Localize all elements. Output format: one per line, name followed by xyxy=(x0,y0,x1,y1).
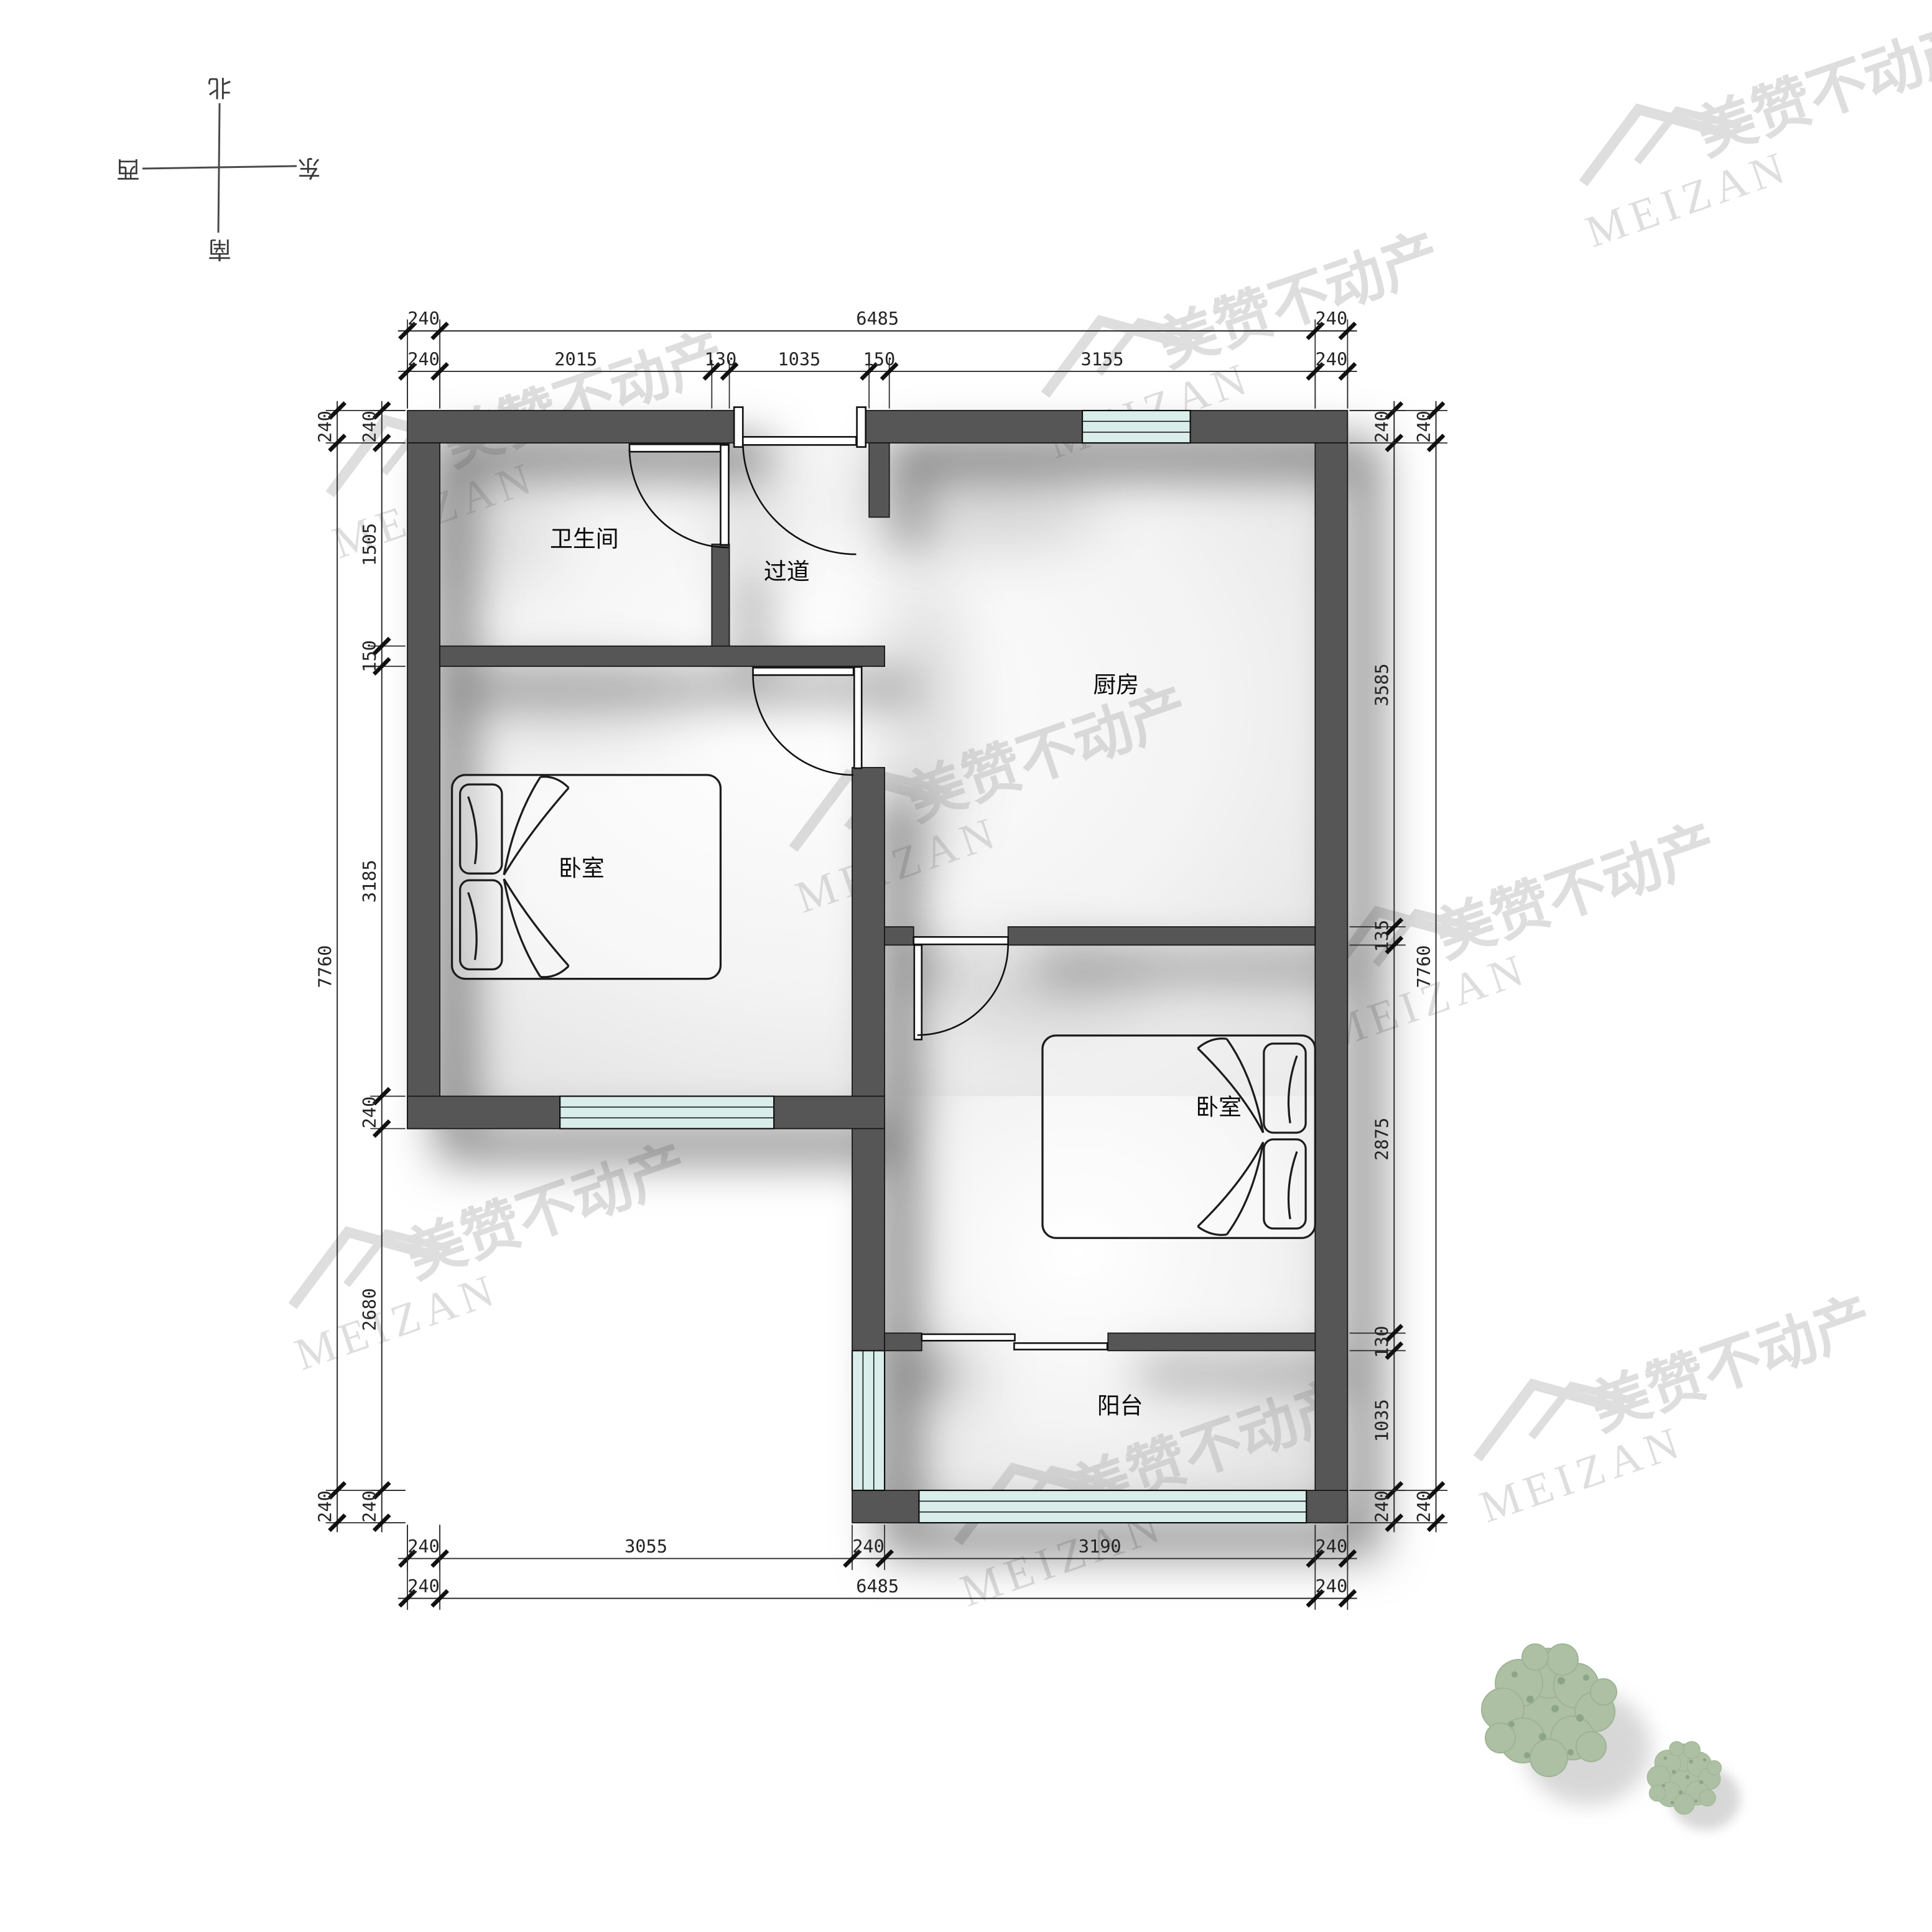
dimension-value: 240 xyxy=(1316,1536,1348,1557)
watermark: MEIZAN美赞不动产 xyxy=(1294,801,1741,1059)
wall-segment xyxy=(1306,1490,1347,1523)
watermark-brand-text: 美赞不动产 xyxy=(1583,1285,1881,1442)
watermark-brand-text: 美赞不动产 xyxy=(1689,10,1932,167)
dimension-value: 240 xyxy=(407,1576,440,1597)
dimension-value: 240 xyxy=(1316,308,1348,329)
dimension-value: 2680 xyxy=(359,1288,380,1331)
watermark: MEIZAN美赞不动产 xyxy=(1449,1273,1897,1532)
dimension-value: 240 xyxy=(1316,1576,1348,1597)
compass-south-label: 南 xyxy=(208,236,231,262)
dimension-value: 240 xyxy=(314,1490,335,1523)
wall-segment xyxy=(407,1096,560,1128)
room-label-hallway: 过道 xyxy=(764,559,810,584)
watermark: MEIZAN美赞不动产 xyxy=(1555,0,1932,257)
dimension-value: 1505 xyxy=(359,523,380,566)
dimension-row-bottom-inner: 24030552403190240 xyxy=(398,1525,1357,1570)
room-label-balcony: 阳台 xyxy=(1097,1393,1143,1418)
dimension-value: 2015 xyxy=(554,348,597,369)
dimension-value: 240 xyxy=(1413,411,1434,443)
room-label-bedroom-right: 卧室 xyxy=(1196,1095,1242,1120)
wall-segment xyxy=(852,768,885,1350)
dimension-row-right-inner: 240358513528751301035240 xyxy=(1350,401,1406,1532)
wall-segment xyxy=(1191,411,1348,443)
dimension-value: 240 xyxy=(1372,411,1393,443)
watermark: MEIZAN美赞不动产 xyxy=(264,1121,712,1380)
dimension-row-left-inner: 240150515031852402680240 xyxy=(359,401,406,1532)
dimension-value: 240 xyxy=(314,411,335,443)
bed-right xyxy=(1043,1036,1315,1238)
tree-large xyxy=(1482,1644,1651,1805)
dimension-value: 3185 xyxy=(359,860,380,903)
wall-segment xyxy=(1108,1333,1315,1350)
room-label-bedroom-left: 卧室 xyxy=(559,856,605,881)
bedroom-left-window xyxy=(560,1096,774,1128)
compass-axis-horizontal xyxy=(142,166,297,169)
wall-segment xyxy=(885,927,914,945)
balcony-left-window xyxy=(852,1350,885,1490)
dimension-value: 240 xyxy=(407,1536,440,1557)
wall-segment xyxy=(1315,443,1347,1523)
floorplan-svg: 北 南 西 东 MEIZAN美赞不动产MEIZAN美赞不动产MEIZAN美赞不动… xyxy=(0,0,1932,1932)
dimension-value: 240 xyxy=(359,411,380,443)
dimension-value: 135 xyxy=(1372,920,1393,952)
compass-west-label: 西 xyxy=(116,156,140,182)
compass-east-label: 东 xyxy=(297,154,321,180)
dimension-value: 6485 xyxy=(856,308,899,329)
wall-segment xyxy=(407,411,738,443)
wall-segment xyxy=(1008,927,1316,945)
watermark-brand-text: 美赞不动产 xyxy=(1428,812,1725,969)
dimension-value: 240 xyxy=(1413,1490,1434,1523)
dimension-value: 7760 xyxy=(1413,945,1434,988)
wall-segment xyxy=(869,443,889,517)
dimension-value: 1035 xyxy=(778,348,820,369)
dimension-value: 3055 xyxy=(625,1536,667,1557)
wall-segment xyxy=(885,1333,922,1350)
dimension-value: 240 xyxy=(359,1490,380,1523)
wall-segment xyxy=(407,443,440,1128)
wall-segment xyxy=(440,646,885,667)
watermark-logo-text: MEIZAN xyxy=(289,1263,506,1380)
dimension-value: 3585 xyxy=(1372,664,1393,707)
floorplan-page: 北 南 西 东 MEIZAN美赞不动产MEIZAN美赞不动产MEIZAN美赞不动… xyxy=(0,0,1932,1932)
dimension-value: 240 xyxy=(852,1536,885,1557)
dimension-value: 150 xyxy=(359,640,380,672)
dimension-row-right-outer: 2407760240 xyxy=(1350,401,1447,1532)
wall-segment xyxy=(852,1490,919,1523)
dimension-value: 130 xyxy=(1372,1326,1393,1358)
dimension-value: 3190 xyxy=(1079,1536,1122,1557)
compass-north-label: 北 xyxy=(208,74,231,100)
dimension-value: 6485 xyxy=(856,1576,899,1597)
dimension-value: 240 xyxy=(407,348,440,369)
dimension-value: 1035 xyxy=(1372,1399,1393,1442)
dimension-value: 7760 xyxy=(314,945,335,988)
room-label-bathroom: 卫生间 xyxy=(550,526,619,552)
tree-small xyxy=(1647,1742,1740,1830)
watermark-brand-text: 美赞不动产 xyxy=(398,1133,696,1289)
wall-segment xyxy=(774,1096,885,1128)
dimension-value: 150 xyxy=(863,348,896,369)
dimension-value: 240 xyxy=(1316,348,1348,369)
dimension-value: 240 xyxy=(359,1097,380,1129)
dimension-value: 240 xyxy=(407,308,440,329)
compass-rose: 北 南 西 东 xyxy=(116,74,321,262)
watermark-logo-text: MEIZAN xyxy=(1579,141,1796,258)
balcony-window xyxy=(919,1490,1306,1523)
room-label-kitchen: 厨房 xyxy=(1093,672,1139,698)
watermark-logo-text: MEIZAN xyxy=(1474,1416,1691,1533)
dimension-value: 240 xyxy=(1372,1490,1393,1523)
trees xyxy=(1482,1644,1740,1830)
watermark-brand-text: 美赞不动产 xyxy=(1151,221,1449,378)
kitchen-window xyxy=(1082,411,1191,443)
wall-segment xyxy=(860,411,1082,443)
dimension-value: 2875 xyxy=(1372,1118,1393,1161)
dimension-value: 130 xyxy=(705,348,737,369)
dimension-value: 3155 xyxy=(1081,348,1124,369)
